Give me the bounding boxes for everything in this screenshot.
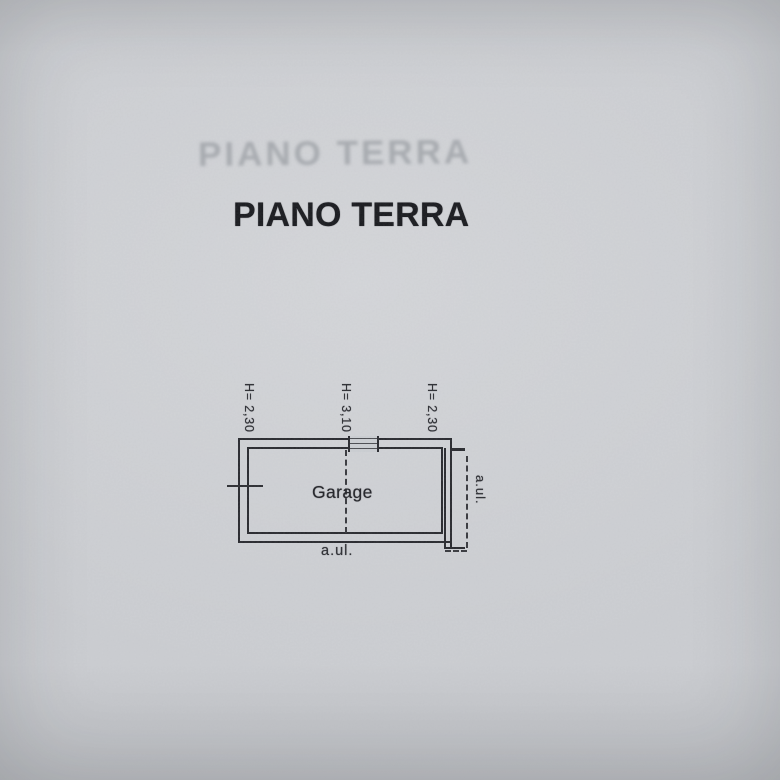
left-reference-tick <box>227 485 263 487</box>
exterior-side-wall-bottom-cap <box>444 547 465 550</box>
height-label-left: H= 2,30 <box>242 383 256 433</box>
door-leaf-line <box>350 448 377 449</box>
door-leaf-line <box>350 443 377 444</box>
boundary-dashed-line-vertical <box>466 456 468 548</box>
page-title: PIANO TERRA <box>233 196 469 235</box>
boundary-dashed-line-horizontal <box>445 550 467 552</box>
height-label-right: H= 2,30 <box>425 383 439 433</box>
height-label-middle: H= 3,10 <box>339 383 353 433</box>
floor-plan-drawing: H= 2,30 H= 3,10 H= 2,30 Garage a.ul. a.u… <box>228 380 528 585</box>
scanned-floor-plan-page: PIANO TERRA PIANO TERRA H= 2,30 H= 3,10 … <box>0 0 780 780</box>
bleedthrough-title: PIANO TERRA <box>198 133 473 175</box>
exterior-side-wall-top-cap <box>450 448 465 451</box>
door-leaf-line <box>350 438 377 439</box>
exterior-side-wall <box>444 448 452 549</box>
exterior-area-label-right: a.ul. <box>473 475 488 505</box>
room-label: Garage <box>312 482 373 503</box>
exterior-area-label-bottom: a.ul. <box>321 543 353 559</box>
garage-door-opening <box>348 436 379 452</box>
